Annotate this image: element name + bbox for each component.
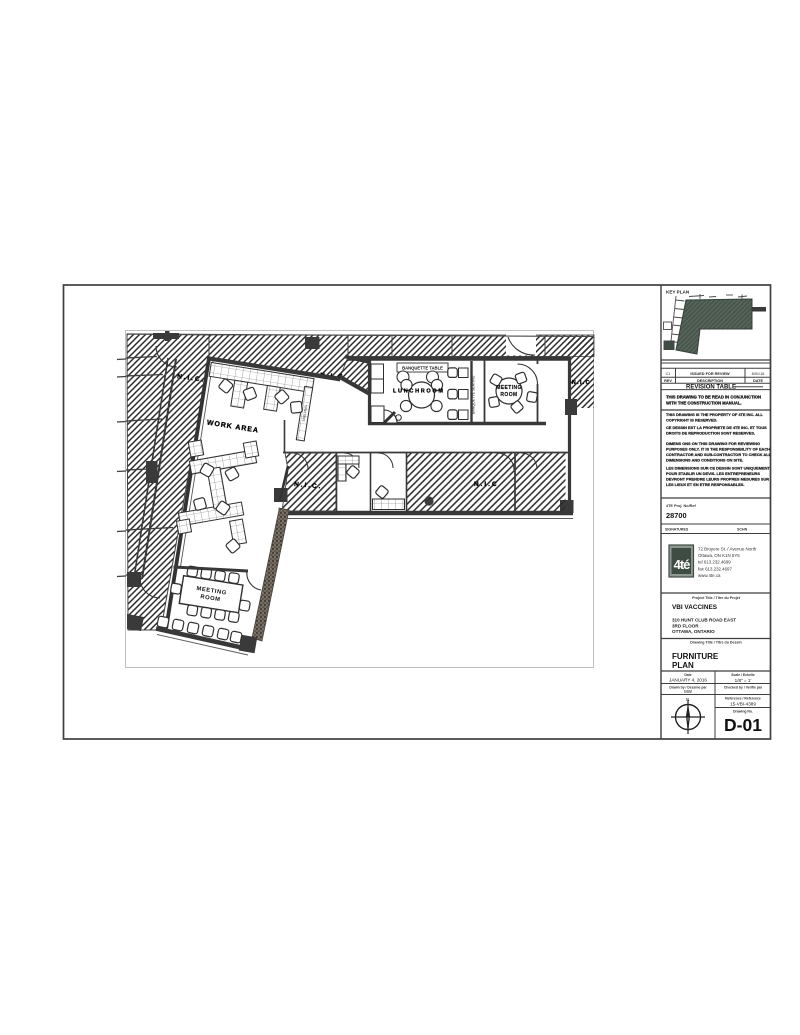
svg-text:FURNITURE: FURNITURE [672,652,719,661]
svg-text:PURPOSES ONLY. IT IS THE RESPO: PURPOSES ONLY. IT IS THE RESPONSIBILITY … [666,447,770,452]
svg-text:Drawing No.: Drawing No. [733,710,753,714]
svg-text:THIS DRAWING IS THE PROPERTY O: THIS DRAWING IS THE PROPERTY OF 4TE INC.… [666,412,763,417]
svg-text:SCHN: SCHN [737,528,748,532]
svg-text:JANUARY 4, 2016: JANUARY 4, 2016 [669,678,707,683]
svg-text:KEY PLAN: KEY PLAN [666,290,690,295]
svg-text:PLAN: PLAN [672,661,694,670]
svg-text:N.I.C: N.I.C [572,380,591,386]
svg-text:COPYRIGHT IS RESERVED.: COPYRIGHT IS RESERVED. [666,418,717,423]
svg-text:3RD FLOOR: 3RD FLOOR [672,624,699,629]
svg-text:CE DESSIN EST LA PROPRIETE DE: CE DESSIN EST LA PROPRIETE DE 4TE INC. E… [666,425,767,430]
svg-text:SIGNATURES: SIGNATURES [665,528,689,532]
svg-text:VBI VACCINES: VBI VACCINES [672,604,718,611]
svg-text:CONTRACTOR AND SUB-CONTRACTOR: CONTRACTOR AND SUB-CONTRACTOR TO CHECK A… [666,452,772,457]
svg-text:BANQUETTE SEATING: BANQUETTE SEATING [472,375,476,414]
svg-text:DROITS DE REPRODUCTION SONT RE: DROITS DE REPRODUCTION SONT RESERVES. [666,431,755,436]
svg-text:Scale / Echelle: Scale / Echelle [731,673,755,677]
svg-text:DEVRONT PRENDRE LEURS PROPRES: DEVRONT PRENDRE LEURS PROPRES MESURES SU… [666,477,769,482]
svg-text:OTTAWA, ONTARIO: OTTAWA, ONTARIO [672,629,715,634]
svg-text:4té: 4té [674,557,691,572]
svg-text:Reference / Reference: Reference / Reference [725,697,761,701]
svg-text:REV: REV [664,379,672,383]
svg-text:4TE Proj. No/Ref: 4TE Proj. No/Ref [666,504,696,508]
svg-text:Date: Date [684,673,691,677]
svg-text:1/8" = 1': 1/8" = 1' [735,678,752,683]
svg-text:DATE: DATE [753,379,764,383]
svg-text:REVISION TABLE: REVISION TABLE [686,385,736,391]
svg-text:N: N [686,697,689,702]
svg-text:Project Title / Titre du Proje: Project Title / Titre du Projet [692,596,741,600]
svg-text:THIS DRAWING TO BE READ IN CON: THIS DRAWING TO BE READ IN CONJUNCTION [666,395,761,400]
svg-text:fax 613.232.4697: fax 613.232.4697 [698,566,732,571]
svg-text:tel 613.232.4699: tel 613.232.4699 [698,560,731,565]
svg-text:ROOM: ROOM [500,392,517,398]
svg-text:Drawing Title / Titre du Dessi: Drawing Title / Titre du Dessin [690,641,741,645]
svg-text:8/01/16: 8/01/16 [752,372,765,376]
svg-text:72 Bruyere St. / Avenue North: 72 Bruyere St. / Avenue North [698,547,757,552]
svg-text:BANQUETTE TABLE: BANQUETTE TABLE [402,366,443,371]
svg-text:28700: 28700 [666,511,687,520]
svg-text:LES DIMENSIONS SUR CE DESSIN S: LES DIMENSIONS SUR CE DESSIN SONT UNIQUE… [666,466,770,471]
svg-text:Checked by / Verifie par: Checked by / Verifie par [724,686,763,690]
svg-text:DIMENS ONS ON THIS DRAWING FOR: DIMENS ONS ON THIS DRAWING FOR REVIEWING [666,441,760,446]
svg-text:ISSUED FOR REVIEW: ISSUED FOR REVIEW [690,372,730,376]
svg-text:LES LIEUX ET EN ETRE RESPONSAB: LES LIEUX ET EN ETRE RESPONSABLES. [666,482,744,487]
svg-text:MEETING: MEETING [496,385,522,391]
svg-text:Ottawa, ON K1N 5Y6: Ottawa, ON K1N 5Y6 [698,553,740,558]
svg-text:MW: MW [684,689,693,694]
svg-text:C1: C1 [666,372,671,376]
svg-text:D-01: D-01 [724,715,762,735]
svg-text:www.4te.ca: www.4te.ca [698,573,721,578]
svg-text:DESCRIPTION: DESCRIPTION [697,379,723,383]
svg-text:15-VBI-4389: 15-VBI-4389 [730,702,756,707]
svg-text:310 HUNT CLUB ROAD EAST: 310 HUNT CLUB ROAD EAST [672,618,736,623]
svg-text:LUNCHROOM: LUNCHROOM [393,389,445,395]
svg-text:DIMENSIONS AND CONDITIONS ON S: DIMENSIONS AND CONDITIONS ON SITE. [666,458,743,463]
svg-text:POUR ETABLIR UN DEVIS. LES EN: POUR ETABLIR UN DEVIS. LES ENTREPRENEURS [666,471,760,476]
svg-text:WITH THE CONSTRUCTION MANUAL.: WITH THE CONSTRUCTION MANUAL. [666,401,742,406]
svg-text:N.I.C: N.I.C [474,481,499,488]
